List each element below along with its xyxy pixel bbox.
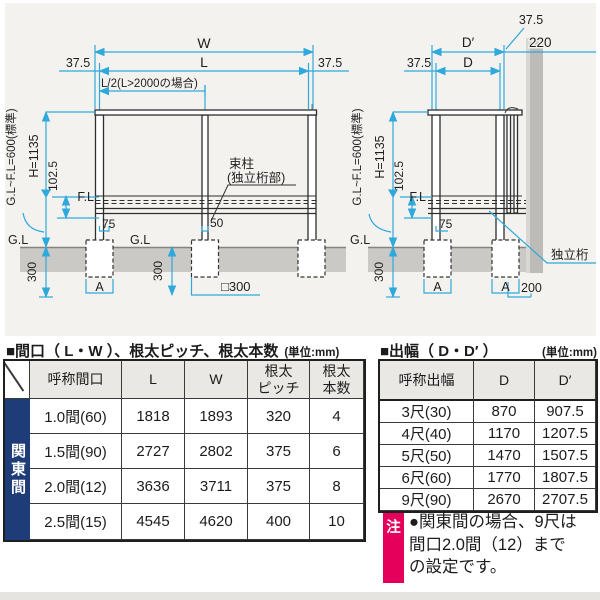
table-row-cell: 320 xyxy=(248,399,310,434)
dim-102-label: 102.5 xyxy=(46,161,60,191)
table-row-cell: 6 xyxy=(310,434,364,469)
table-row-cell: 1.5間(90) xyxy=(30,434,122,469)
dim-50-label: 50 xyxy=(210,216,224,230)
wall-dim-label: 220 xyxy=(529,35,552,50)
row-group-kantoma: 関東間 xyxy=(5,399,30,540)
table-row-cell: 2.0間(12) xyxy=(30,469,122,504)
offset-left-label: 37.5 xyxy=(66,56,90,70)
span-table: 呼称間口 L W 根太 ピッチ 根太 本数 関東間 1.0間(60) 1818 … xyxy=(3,359,366,542)
corner-diagonal-cell xyxy=(5,361,30,399)
dim-dprime-label: D′ xyxy=(462,35,475,50)
note-line: の設定です。 xyxy=(409,556,599,579)
height-label-right: H=1135 xyxy=(373,135,387,178)
note-line: ●関東間の場合、9尺は xyxy=(409,511,599,534)
table-row-cell: 1207.5 xyxy=(535,423,596,445)
footing-a2-label: A xyxy=(501,280,510,294)
spec-sheet: W L 37.5 37.5 L/2(L>2000の場合) H=1135 G.L~… xyxy=(0,0,600,600)
post-label-1: 束柱 xyxy=(229,156,254,171)
table-row-cell: 3尺(30) xyxy=(380,401,474,423)
depth-label-right: 300 xyxy=(372,262,386,282)
table-row-cell: 1818 xyxy=(122,399,185,434)
gl-label-right: G.L xyxy=(350,233,370,247)
note-line: 間口2.0間（12）まで xyxy=(409,534,599,557)
table-row-cell: 4545 xyxy=(122,504,185,540)
depth-mid-label: 300 xyxy=(151,261,165,281)
dim-w-label: W xyxy=(197,35,211,51)
table-row-cell: 5尺(50) xyxy=(380,445,474,467)
ground-band xyxy=(20,247,346,272)
dim-102-label-right: 102.5 xyxy=(392,161,406,191)
table-row-cell: 2670 xyxy=(474,489,535,511)
table-row-cell: 2.5間(15) xyxy=(30,504,122,540)
note-text: ●関東間の場合、9尺は 間口2.0間（12）まで の設定です。 xyxy=(409,511,599,579)
table-row-cell: 2707.5 xyxy=(535,489,596,511)
fl-label-right: F.L xyxy=(409,190,426,204)
table-row-cell: 1893 xyxy=(185,399,248,434)
right-table-unit: (単位:mm) xyxy=(542,344,597,360)
height-label: H=1135 xyxy=(27,134,41,177)
table-row-cell: 3636 xyxy=(122,469,185,504)
table-row-cell: 4 xyxy=(310,399,364,434)
left-table-title: ■間口（ L・W ）、根太ピッチ、根太本数 (単位:mm) xyxy=(6,340,378,361)
dim-75-label: 75 xyxy=(102,217,116,231)
table-row-cell: 1770 xyxy=(474,467,535,489)
dim-75-label-right: 75 xyxy=(439,217,453,231)
col-header-d: D xyxy=(474,361,535,401)
beam-label: 独立桁 xyxy=(551,247,589,262)
footing-a-label: A xyxy=(95,280,104,294)
glfl-label: G.L~F.L=600(標準) xyxy=(4,108,18,205)
offset-right-label: 37.5 xyxy=(318,56,342,70)
col-header-pitch: 根太 ピッチ xyxy=(248,361,310,399)
col-header-count: 根太 本数 xyxy=(310,361,364,399)
table-row-cell: 9尺(90) xyxy=(380,489,474,511)
glfl-label-right: G.L~F.L=600(標準) xyxy=(350,108,364,205)
right-table-title-text: ■出幅（ D・D′ ） xyxy=(380,340,498,361)
col-header-dprime: D′ xyxy=(535,361,596,401)
depth-left-label: 300 xyxy=(25,262,39,282)
col-header-w: W xyxy=(185,361,248,399)
left-table-unit: (単位:mm) xyxy=(284,344,339,360)
offset-left-label-right: 37.5 xyxy=(407,56,431,70)
note-badge: 注 xyxy=(383,513,404,583)
table-row-cell: 1170 xyxy=(474,423,535,445)
table-row-cell: 8 xyxy=(310,469,364,504)
table-row-cell: 10 xyxy=(310,504,364,540)
dim-l-label: L xyxy=(200,54,208,70)
footing-size-label: □300 xyxy=(221,279,251,294)
half-span-label: L/2(L>2000の場合) xyxy=(101,76,198,90)
dim-d-label: D xyxy=(463,55,473,70)
left-table-title-text: ■間口（ L・W ）、根太ピッチ、根太本数 xyxy=(6,340,278,361)
table-row-cell: 4尺(40) xyxy=(380,423,474,445)
table-row-cell: 1470 xyxy=(474,445,535,467)
post-label-2: (独立桁部) xyxy=(227,170,285,185)
footing-a1-label: A xyxy=(433,280,442,294)
col-header-depth-name: 呼称出幅 xyxy=(380,361,474,401)
depth-table: 呼称出幅 D D′ 3尺(30) 870 907.5 4尺(40) 1170 1… xyxy=(378,359,598,513)
wall-highlight xyxy=(526,38,530,273)
table-row-cell: 1507.5 xyxy=(535,445,596,467)
table-row-cell: 2727 xyxy=(122,434,185,469)
table-row-cell: 375 xyxy=(248,469,310,504)
col-header-name: 呼称間口 xyxy=(30,361,122,399)
col-header-l: L xyxy=(122,361,185,399)
gl-left-label: G.L xyxy=(8,233,28,247)
fl-label: F.L xyxy=(77,190,94,204)
table-row-cell: 1.0間(60) xyxy=(30,399,122,434)
table-row-cell: 4620 xyxy=(185,504,248,540)
right-table-title: ■出幅（ D・D′ ） (単位:mm) xyxy=(380,340,597,361)
table-row-cell: 400 xyxy=(248,504,310,540)
bottom-strip xyxy=(0,592,600,600)
table-row-cell: 6尺(60) xyxy=(380,467,474,489)
table-row-cell: 3711 xyxy=(185,469,248,504)
table-row-cell: 870 xyxy=(474,401,535,423)
dim-200-label: 200 xyxy=(521,281,542,295)
table-row-cell: 1807.5 xyxy=(535,467,596,489)
table-row-cell: 375 xyxy=(248,434,310,469)
elevation-drawings: W L 37.5 37.5 L/2(L>2000の場合) H=1135 G.L~… xyxy=(0,0,600,338)
offset-top-label: 37.5 xyxy=(519,13,543,27)
table-row-cell: 2802 xyxy=(185,434,248,469)
gl-mid-label: G.L xyxy=(130,233,150,247)
table-row-cell: 907.5 xyxy=(535,401,596,423)
